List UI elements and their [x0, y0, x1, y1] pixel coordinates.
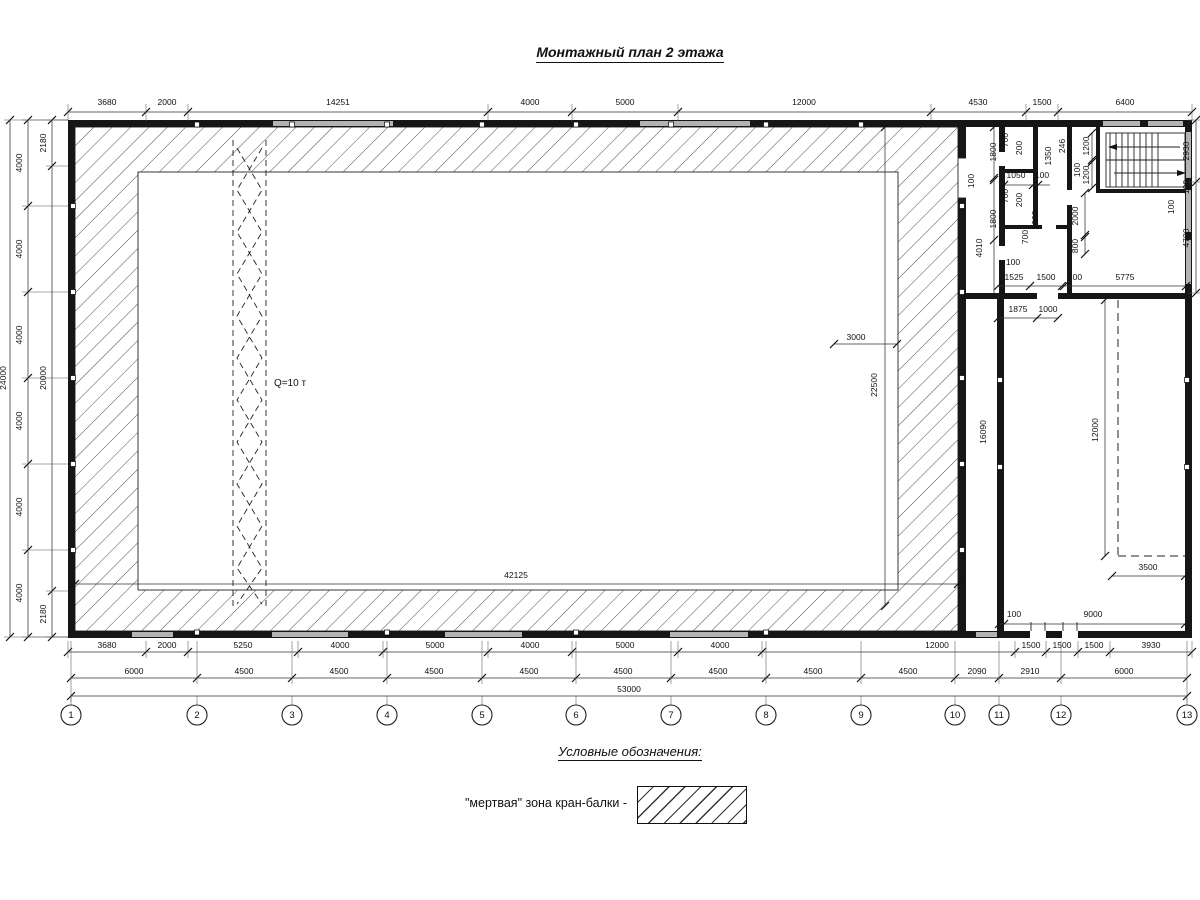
dimension-label: 12000: [792, 97, 816, 107]
dimension-label: 100: [1166, 200, 1176, 214]
dimension-label: 1500: [1033, 97, 1052, 107]
grid-bubble-number: 6: [573, 710, 578, 721]
dimension-label: 700: [1000, 133, 1010, 147]
dimension-label: 4000: [521, 97, 540, 107]
drawing-sheet: Монтажный план 2 этажа: [0, 0, 1200, 900]
dimension-label: 2000: [1070, 206, 1080, 225]
dimension-label: 3680: [98, 640, 117, 650]
grid-bubble-number: 9: [858, 710, 863, 721]
dimension-label: 1350: [1043, 146, 1053, 165]
grid-bubble-number: 12: [1056, 710, 1067, 721]
dimension-label: 700: [1020, 230, 1030, 244]
dimension-label: 6400: [1116, 97, 1135, 107]
dimension-label: 12000: [925, 640, 949, 650]
dimension-label: 1500: [1037, 272, 1056, 282]
dimension-label: 6000: [125, 666, 144, 676]
dimension-label: 1500: [1022, 640, 1041, 650]
dimension-label: 1500: [1053, 640, 1072, 650]
dimension-label: 4000: [14, 583, 24, 602]
dimension-label: 53000: [617, 684, 641, 694]
dimension-label: 4000: [711, 640, 730, 650]
grid-bubble-number: 5: [479, 710, 484, 721]
dimension-label: 24000: [0, 366, 8, 390]
dimension-label: 3500: [1139, 562, 1158, 572]
dimension-label: 200: [1014, 193, 1024, 207]
floor-plan-canvas: 3680200014251400050001200045301500640024…: [0, 0, 1200, 900]
dimension-label: 2180: [38, 133, 48, 152]
legend-item-label: "мертвая" зона кран-балки -: [465, 796, 627, 810]
dimension-label: 1000: [1039, 304, 1058, 314]
dimension-label: 4500: [425, 666, 444, 676]
dimension-label: 12000: [1090, 418, 1100, 442]
dimension-label: 1200: [1081, 165, 1091, 184]
dimension-label: 5000: [616, 97, 635, 107]
dimension-label: 4000: [14, 497, 24, 516]
legend-heading-text: Условные обозначения:: [558, 744, 702, 761]
dimension-label: 4500: [330, 666, 349, 676]
dimension-label: 22500: [869, 373, 879, 397]
dimension-label: 5250: [234, 640, 253, 650]
dimension-label: 4000: [14, 411, 24, 430]
dimension-label: 42125: [504, 570, 528, 580]
dimension-label: 4500: [235, 666, 254, 676]
dimension-label: 1875: [1009, 304, 1028, 314]
grid-bubble-number: 11: [994, 710, 1004, 721]
dimension-label: 100: [966, 174, 976, 188]
dimension-label: 4000: [14, 325, 24, 344]
dimension-label: 246: [1057, 139, 1067, 153]
dimension-label: 1500: [1085, 640, 1104, 650]
dimension-label: 4500: [804, 666, 823, 676]
grid-bubble-number: 13: [1182, 710, 1193, 721]
right-room-dead-zone-boundary: [1118, 300, 1185, 556]
dimension-label: 1050: [1007, 170, 1026, 180]
dimension-label: 3930: [1142, 640, 1161, 650]
dimension-label: 4500: [709, 666, 728, 676]
legend-heading: Условные обозначения:: [60, 744, 1200, 759]
grid-bubble-number: 3: [289, 710, 294, 721]
dimension-label: 4530: [969, 97, 988, 107]
dimension-label: 100: [1006, 257, 1020, 267]
dimension-label: 4000: [521, 640, 540, 650]
dimension-label: 100: [1007, 609, 1021, 619]
dimension-label: 4500: [899, 666, 918, 676]
dimension-label: 100: [1181, 180, 1191, 194]
dimension-label: 2180: [38, 604, 48, 623]
crane-beam-symbol: [233, 140, 266, 606]
dimension-label: 4000: [14, 153, 24, 172]
dimension-label: 100: [1035, 170, 1049, 180]
dimension-label: 4000: [331, 640, 350, 650]
dimension-label: 5775: [1116, 272, 1135, 282]
dimension-label: 5000: [426, 640, 445, 650]
dimension-label: 4500: [614, 666, 633, 676]
dimension-label: 1000: [1030, 210, 1040, 229]
dimension-label: 1200: [1081, 136, 1091, 155]
dimension-label: 9000: [1084, 609, 1103, 619]
grid-bubble-number: 2: [194, 710, 199, 721]
dimension-label: 4000: [14, 239, 24, 258]
grid-bubble-number: 4: [384, 710, 389, 721]
dimension-label: 100: [1068, 272, 1082, 282]
dimension-label: Q=10 т: [274, 378, 307, 389]
dimension-label: 2000: [158, 97, 177, 107]
dimension-label: 1800: [988, 209, 998, 228]
dimension-label: 1800: [988, 142, 998, 161]
dimension-label: 2930: [1181, 141, 1191, 160]
grid-bubble-number: 1: [68, 710, 73, 721]
dimension-label: 2000: [158, 640, 177, 650]
dimension-label: 4010: [974, 238, 984, 257]
dimension-label: 16090: [978, 420, 988, 444]
dimension-label: 2910: [1021, 666, 1040, 676]
dimension-label: 20000: [38, 366, 48, 390]
crane-dead-zone-hatch: [75, 127, 958, 631]
dimension-label: 2090: [968, 666, 987, 676]
legend-hatch-swatch: [637, 786, 747, 824]
grid-bubble-number: 8: [763, 710, 768, 721]
dimension-label: 14251: [326, 97, 350, 107]
dimension-label: 4780: [1181, 228, 1191, 247]
dimension-label: 200: [1014, 141, 1024, 155]
dimension-label: 700: [1000, 189, 1010, 203]
grid-bubble-number: 7: [668, 710, 673, 721]
staircase: [1106, 133, 1186, 187]
grid-bubble-number: 10: [950, 710, 961, 721]
dimension-label: 1525: [1005, 272, 1024, 282]
dimension-label: 800: [1070, 239, 1080, 253]
dimension-label: 3000: [847, 332, 866, 342]
dimension-label: 3680: [98, 97, 117, 107]
dimension-label: 5000: [616, 640, 635, 650]
dimension-label: 4500: [520, 666, 539, 676]
dimension-label: 6000: [1115, 666, 1134, 676]
